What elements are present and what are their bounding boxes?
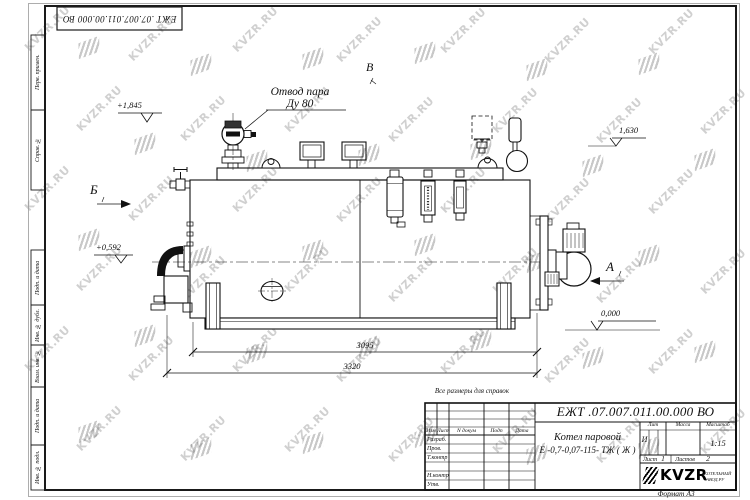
col-header-date: Дата	[509, 429, 535, 435]
role-tkontr: Т.контр	[427, 455, 447, 461]
margin-label-vzam-inv: Взам. инв. №	[31, 345, 45, 387]
elevation-shell-top: 1,630	[619, 126, 638, 135]
scale-label: Масштаб	[700, 423, 736, 429]
doc-number: ЕЖТ .07.007.011.00.000 ВО	[537, 405, 734, 419]
kvzr-logo-subtext-1: КОТЕЛЬНЫЙ	[704, 471, 731, 476]
dimension-shell-length: 3095	[330, 341, 400, 350]
scale-value: 1:15	[700, 439, 736, 448]
role-razrab: Разраб.	[427, 437, 446, 443]
reference-note: Все размеры для справок	[430, 388, 514, 395]
drawing-sheet: KVZR.RUKVZR.RUKVZR.RUKVZR.RUKVZR.RUKVZR.…	[0, 0, 750, 500]
product-model: Е -0,7-0,07-115- ТЖ ( Ж )	[535, 446, 640, 455]
sheet-label: Лист	[642, 457, 658, 463]
margin-label-podp-data-1: Подп. и дата	[31, 250, 45, 305]
top-corner-stamp: ЕЖТ .07.007.011.00.000 ВО	[57, 7, 182, 30]
elevation-ground: 0,000	[601, 309, 620, 318]
mass-label: Масса	[666, 423, 700, 429]
text-layer: ЕЖТ .07.007.011.00.000 ВО Перв. примен. …	[0, 0, 750, 500]
view-label-a: А	[606, 260, 614, 274]
sheet-value: 1	[658, 455, 668, 463]
margin-label-inv-podl: Инв. № подл.	[31, 445, 45, 490]
col-header-list: Лист	[437, 429, 449, 435]
steam-outlet-callout-line2: Ду 80	[258, 98, 342, 110]
dimension-overall-length: 3320	[317, 362, 387, 371]
col-header-izm: Изм	[425, 429, 437, 435]
margin-label-podp-data-2: Подп. и дата	[31, 387, 45, 445]
view-label-v: В	[366, 61, 373, 74]
role-prov: Пров.	[427, 446, 441, 452]
lit-value: И	[640, 436, 649, 444]
margin-label-perv-primen: Перв. примен.	[31, 35, 45, 110]
lit-label: Лит	[640, 423, 666, 429]
margin-label-inv-dubl: Инв. № дубл.	[31, 305, 45, 345]
sheets-value: 2	[702, 455, 714, 463]
steam-outlet-callout-line1: Отвод пара	[258, 86, 342, 98]
format-note: Формат А3	[652, 490, 700, 498]
kvzr-logo-subtext-2: ЗАВОД.РУ	[704, 477, 724, 482]
kvzr-logo-text: KVZR	[660, 468, 708, 484]
elevation-valve-top: +1,845	[117, 101, 142, 110]
role-utv: Утв.	[427, 482, 439, 488]
elevation-axis: +0,592	[96, 243, 121, 252]
sheets-label: Листов	[673, 457, 697, 463]
margin-label-sprav-no: Справ. №	[31, 110, 45, 190]
role-nkontr: Н.контр	[427, 473, 449, 479]
view-label-b: Б	[90, 183, 98, 197]
col-header-doc: N докум	[449, 429, 484, 435]
product-name: Котел паровой	[537, 432, 638, 443]
kvzr-logo-icon	[642, 467, 660, 484]
col-header-sign: Подп	[484, 429, 509, 435]
